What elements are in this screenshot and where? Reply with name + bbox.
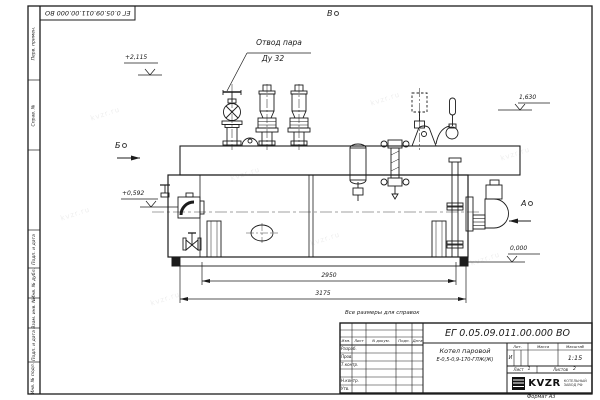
margin-stamp-vzam-inv: Взам. инв. №	[32, 298, 37, 329]
col-header-date: Дата	[412, 339, 423, 343]
col-header-izm: Изм.	[340, 339, 352, 343]
designation-text: ЕГ 0.05.09.011.00.000 ВО	[445, 328, 570, 339]
lit-value: И	[509, 355, 513, 361]
company-cell: KVZR КОТЕЛЬНЫЙ ЗАВОД РФ	[507, 373, 592, 393]
designation-cell: ЕГ 0.05.09.011.00.000 ВО	[423, 323, 592, 343]
margin-stamp-inv-podl: Инв. № подл.	[32, 362, 37, 393]
sheets-label: Листов	[553, 367, 568, 372]
elevation-gauge-label: 1,630	[519, 95, 536, 101]
siphon-tube	[436, 98, 458, 144]
sheet-label: Лист	[513, 367, 523, 372]
scale-value: 1:15	[568, 354, 583, 362]
lifting-lug	[412, 126, 436, 146]
steam-outlet-callout-line2: Ду 32	[245, 55, 301, 63]
format-note: Формат А3	[527, 395, 555, 400]
elevation-top-label: +2,115	[125, 55, 147, 61]
elevation-marks	[121, 63, 550, 262]
doc-number-stamp-box: ЕГ 0.05.09.011.00.000 ВО	[40, 6, 135, 20]
view-label-v: В	[327, 10, 339, 18]
row-ncontrol: Н.контр.	[341, 379, 359, 383]
elevation-ground-label: 0,000	[510, 246, 527, 252]
view-letter-v: В	[327, 9, 333, 18]
margin-stamp-inv-dubl: Инв. № дубл.	[32, 268, 37, 299]
view-letter-a: А	[521, 199, 526, 208]
margin-stamp-sprav-no: Справ. №	[32, 104, 37, 126]
dimension-3175-label: 3175	[180, 291, 466, 297]
view-label-a: А	[521, 200, 533, 208]
scale-header: Масштаб	[558, 345, 592, 349]
reference-note: Все размеры для справок	[345, 311, 420, 317]
burner	[466, 180, 509, 231]
company-logo-text: KVZR	[528, 378, 560, 389]
drain-valve	[183, 233, 201, 250]
elevation-feed-label: +0,592	[122, 191, 144, 197]
product-name-line1: Котел паровой	[423, 348, 507, 355]
view-arrow-a	[509, 219, 531, 224]
view-letter-b: Б	[115, 141, 121, 150]
kvzr-logo-icon	[512, 377, 525, 390]
view-circle-icon	[528, 201, 533, 206]
sheet-cell: Лист 1	[507, 366, 537, 373]
dimension-2950-label: 2950	[202, 273, 456, 279]
product-name-line2: Е-0,5-0,9-170-ГЛЖ(Ж)	[423, 358, 507, 363]
sheet-value: 1	[528, 367, 531, 372]
level-column	[350, 144, 366, 201]
row-checked: Пров.	[341, 355, 353, 359]
col-header-doc: N докум.	[366, 339, 396, 343]
drawing-sheet: kvzr.ru kvzr.ru kvzr.ru kvzr.ru kvzr.ru …	[0, 0, 600, 400]
sheets-value: 2	[573, 367, 576, 372]
row-approved: Утв.	[341, 387, 349, 391]
view-circle-icon	[122, 143, 127, 148]
scale-value-cell: 1:15	[558, 350, 592, 366]
manhole-dome	[242, 138, 258, 146]
doc-number-stamp: ЕГ 0.05.09.011.00.000 ВО	[45, 9, 131, 17]
margin-stamp-perv-primen: Перв. примен.	[32, 26, 37, 60]
margin-stamp-podp-data-2: Подп. и дата	[32, 330, 37, 361]
support-leg-left	[207, 221, 221, 257]
base-skid	[172, 221, 468, 266]
row-tcontrol: Т.контр.	[341, 363, 358, 367]
view-arrow-b	[117, 156, 140, 161]
support-leg-right	[432, 221, 446, 257]
view-label-b: Б	[115, 142, 127, 150]
view-circle-icon	[334, 11, 339, 16]
col-header-list: Лист	[352, 339, 366, 343]
company-sub-line2: ЗАВОД РФ	[564, 383, 587, 387]
water-gauge-glass	[381, 140, 409, 199]
centerlines	[152, 84, 482, 243]
sheets-cell: Листов 2	[537, 366, 592, 373]
feed-valve	[178, 193, 204, 218]
margin-stamp-podp-data-1: Подп. и дата	[32, 234, 37, 265]
col-header-sign: Подп.	[396, 339, 412, 343]
lit-value-cell: И	[507, 350, 514, 366]
lit-header: Лит.	[507, 345, 528, 349]
row-developed: Разраб.	[341, 347, 357, 351]
burner-motor	[486, 185, 502, 199]
steam-outlet-callout-line1: Отвод пара	[245, 39, 313, 47]
rear-pipe	[447, 158, 463, 257]
mass-header: Масса	[528, 345, 558, 349]
